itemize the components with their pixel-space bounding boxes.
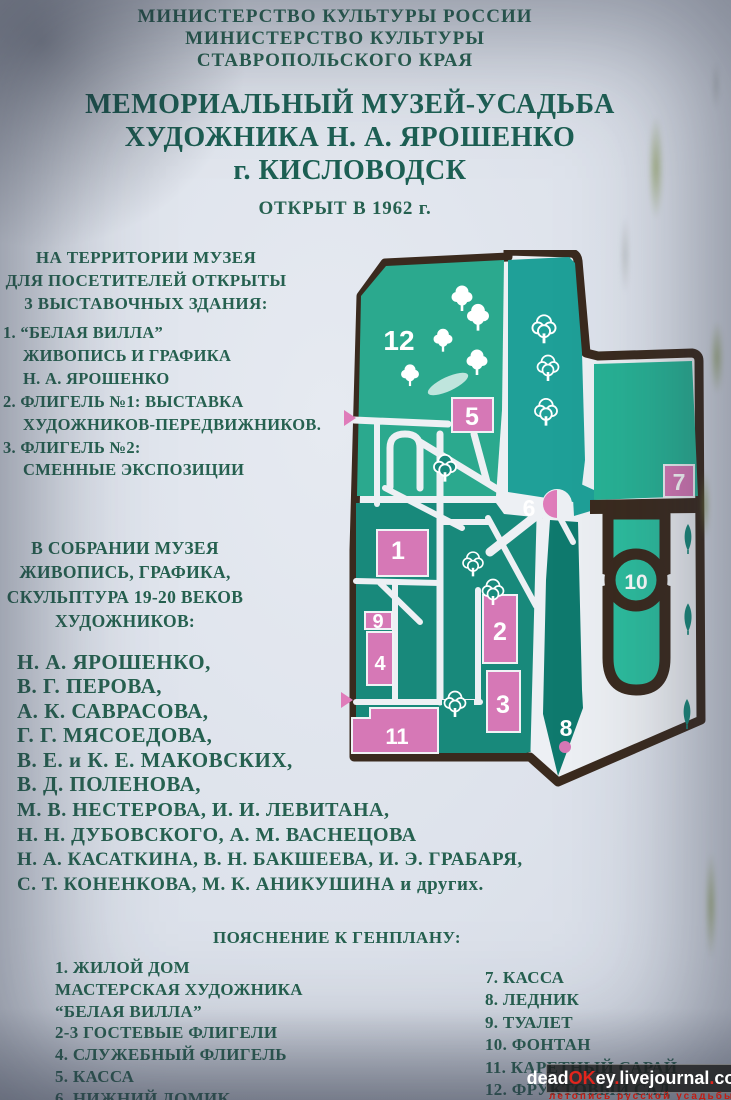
collection-intro: В СОБРАНИИ МУЗЕЯ ЖИВОПИСЬ, ГРАФИКА, СКУЛ… xyxy=(0,536,250,634)
legend-item: 8. ЛЕДНИК xyxy=(485,989,677,1011)
legend-item: 4. СЛУЖЕБНЫЙ ФЛИГЕЛЬ xyxy=(55,1044,303,1066)
collection-line: СКУЛЬПТУРА 19-20 ВЕКОВ xyxy=(0,585,250,609)
museum-title: МЕМОРИАЛЬНЫЙ МУЗЕЙ-УСАДЬБА ХУДОЖНИКА Н. … xyxy=(40,88,660,187)
map-label-4: 4 xyxy=(374,653,386,675)
watermark: deadOKey.livejournal.com xyxy=(546,1064,731,1093)
map-label-12: 12 xyxy=(383,325,414,356)
map-label-2: 2 xyxy=(493,618,507,646)
buildings-list-item: Н. А. ЯРОШЕНКО xyxy=(3,368,348,391)
map-label-3: 3 xyxy=(496,691,510,719)
ministry-line: МИНИСТЕРСТВО КУЛЬТУРЫ РОССИИ xyxy=(30,6,640,28)
exhibition-buildings-list: 1. “БЕЛАЯ ВИЛЛА” ЖИВОПИСЬ И ГРАФИКА Н. А… xyxy=(3,322,348,482)
artist-line: Н. А. КАСАТКИНА, В. Н. БАКШЕЕВА, И. Э. Г… xyxy=(17,849,717,874)
artist-line: Н. Н. ДУБОВСКОГО, А. М. ВАСНЕЦОВА xyxy=(17,824,717,849)
buildings-list-item: 2. ФЛИГЕЛЬ №1: ВЫСТАВКА xyxy=(3,391,348,414)
map-ice-house-dot xyxy=(559,741,571,753)
legend-item: 7. КАССА xyxy=(485,967,677,989)
buildings-list-item: ХУДОЖНИКОВ-ПЕРЕДВИЖНИКОВ. xyxy=(3,414,348,437)
map-label-8: 8 xyxy=(560,715,573,741)
map-label-6: 6 xyxy=(523,495,536,521)
legend-item: 10. ФОНТАН xyxy=(485,1034,677,1056)
map-label-11: 11 xyxy=(385,724,408,749)
map-label-10: 10 xyxy=(624,571,647,594)
museum-title-line: г. КИСЛОВОДСК xyxy=(40,154,660,187)
buildings-list-item: 3. ФЛИГЕЛЬ №2: xyxy=(3,437,348,460)
legend-item: 5. КАССА xyxy=(55,1066,303,1088)
legend-item: 9. ТУАЛЕТ xyxy=(485,1012,677,1034)
map-label-9: 9 xyxy=(372,611,383,633)
collection-line: ЖИВОПИСЬ, ГРАФИКА, xyxy=(0,560,250,584)
legend-item: 6. НИЖНИЙ ДОМИК xyxy=(55,1088,303,1100)
museum-title-line: МЕМОРИАЛЬНЫЙ МУЗЕЙ-УСАДЬБА xyxy=(40,88,660,121)
legend-item: 1. ЖИЛОЙ ДОМ xyxy=(55,957,303,979)
map-label-7: 7 xyxy=(673,469,686,495)
artist-line: М. В. НЕСТЕРОВА, И. И. ЛЕВИТАНА, xyxy=(17,799,717,824)
legend-heading: ПОЯСНЕНИЕ К ГЕНПЛАНУ: xyxy=(187,928,487,948)
map-label-1: 1 xyxy=(391,537,405,565)
upper-park-band xyxy=(508,257,585,503)
watermark-tagline: летопись русской усадьбы xyxy=(549,1091,731,1100)
map-label-5: 5 xyxy=(465,403,479,431)
buildings-list-item: ЖИВОПИСЬ И ГРАФИКА xyxy=(3,345,348,368)
collection-line: В СОБРАНИИ МУЗЕЯ xyxy=(0,536,250,560)
legend-left-column: 1. ЖИЛОЙ ДОМ МАСТЕРСКАЯ ХУДОЖНИКА “БЕЛАЯ… xyxy=(55,957,303,1100)
ministry-line: МИНИСТЕРСТВО КУЛЬТУРЫ xyxy=(30,28,640,50)
ministry-line: СТАВРОПОЛЬСКОГО КРАЯ xyxy=(30,50,640,72)
dirt-streak xyxy=(712,60,720,110)
museum-title-line: ХУДОЖНИКА Н. А. ЯРОШЕНКО xyxy=(40,121,660,154)
collection-line: ХУДОЖНИКОВ: xyxy=(0,609,250,633)
legend-item: “БЕЛАЯ ВИЛЛА” xyxy=(55,1001,303,1023)
artist-line: С. Т. КОНЕНКОВА, М. К. АНИКУШИНА и други… xyxy=(17,874,717,899)
opened-year: ОТКРЫТ В 1962 г. xyxy=(35,198,655,220)
museum-sign-photo: МИНИСТЕРСТВО КУЛЬТУРЫ РОССИИ МИНИСТЕРСТВ… xyxy=(0,0,731,1100)
intro-line: ДЛЯ ПОСЕТИТЕЛЕЙ ОТКРЫТЫ xyxy=(0,269,292,292)
intro-line: 3 ВЫСТАВОЧНЫХ ЗДАНИЯ: xyxy=(0,292,292,315)
buildings-list-item: СМЕННЫЕ ЭКСПОЗИЦИИ xyxy=(3,459,348,482)
legend-item: 2-3 ГОСТЕВЫЕ ФЛИГЕЛИ xyxy=(55,1022,303,1044)
ministry-header: МИНИСТЕРСТВО КУЛЬТУРЫ РОССИИ МИНИСТЕРСТВ… xyxy=(30,6,640,72)
buildings-list-item: 1. “БЕЛАЯ ВИЛЛА” xyxy=(3,322,348,345)
territory-intro: НА ТЕРРИТОРИИ МУЗЕЯ ДЛЯ ПОСЕТИТЕЛЕЙ ОТКР… xyxy=(0,246,292,315)
watermark-text: deadOKey.livejournal.com xyxy=(527,1068,731,1089)
intro-line: НА ТЕРРИТОРИИ МУЗЕЯ xyxy=(0,246,292,269)
legend-item: МАСТЕРСКАЯ ХУДОЖНИКА xyxy=(55,979,303,1001)
site-plan-map: 12 5 1 9 4 2 3 11 6 8 7 10 xyxy=(340,250,725,795)
